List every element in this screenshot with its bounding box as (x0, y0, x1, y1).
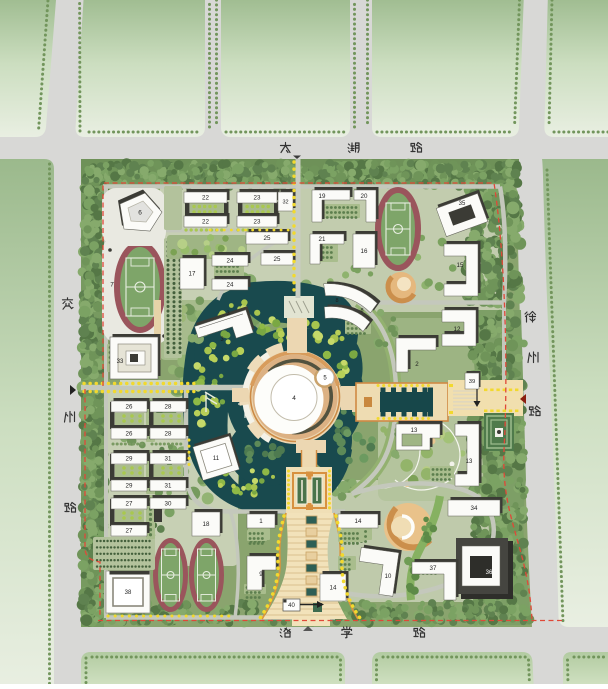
svg-text:15: 15 (457, 262, 464, 269)
svg-text:2: 2 (415, 361, 419, 368)
svg-text:14: 14 (355, 518, 362, 525)
svg-text:38: 38 (125, 590, 132, 596)
svg-text:23: 23 (254, 219, 261, 226)
svg-text:17: 17 (189, 271, 196, 278)
svg-text:37: 37 (430, 565, 437, 572)
svg-text:7: 7 (110, 281, 114, 288)
svg-text:31: 31 (165, 483, 172, 490)
svg-text:24: 24 (227, 258, 234, 265)
svg-text:8: 8 (360, 308, 363, 314)
svg-text:11: 11 (213, 456, 220, 462)
svg-text:36: 36 (486, 570, 493, 576)
svg-text:40: 40 (288, 603, 295, 609)
svg-text:30: 30 (165, 501, 172, 508)
svg-text:12: 12 (454, 326, 461, 333)
svg-text:27: 27 (126, 501, 133, 508)
svg-text:1: 1 (259, 518, 263, 525)
svg-text:28: 28 (165, 431, 172, 438)
svg-text:25: 25 (264, 235, 271, 242)
svg-text:39: 39 (469, 379, 475, 385)
svg-text:13: 13 (466, 459, 473, 465)
svg-text:25: 25 (274, 256, 281, 263)
svg-text:28: 28 (165, 404, 172, 411)
svg-text:29: 29 (126, 456, 133, 463)
svg-text:8: 8 (335, 298, 338, 304)
svg-text:29: 29 (126, 483, 133, 490)
svg-text:9: 9 (259, 571, 263, 578)
svg-text:24: 24 (227, 282, 234, 289)
svg-text:33: 33 (117, 359, 124, 365)
svg-text:34: 34 (471, 505, 478, 512)
svg-text:4: 4 (292, 395, 296, 402)
svg-text:16: 16 (361, 248, 368, 255)
svg-text:35: 35 (459, 201, 466, 207)
svg-text:13: 13 (411, 428, 418, 434)
svg-text:31: 31 (165, 456, 172, 463)
svg-text:20: 20 (361, 193, 368, 200)
svg-text:32: 32 (282, 199, 288, 205)
svg-text:21: 21 (319, 236, 326, 243)
svg-text:26: 26 (126, 404, 133, 411)
svg-text:26: 26 (126, 431, 133, 438)
svg-text:14: 14 (330, 585, 337, 592)
svg-text:18: 18 (203, 521, 210, 528)
svg-text:19: 19 (319, 193, 326, 200)
svg-text:10: 10 (385, 574, 392, 580)
svg-text:22: 22 (202, 219, 209, 226)
svg-text:22: 22 (202, 195, 209, 202)
svg-text:23: 23 (254, 195, 261, 202)
svg-text:27: 27 (126, 528, 133, 535)
svg-text:6: 6 (138, 209, 142, 216)
